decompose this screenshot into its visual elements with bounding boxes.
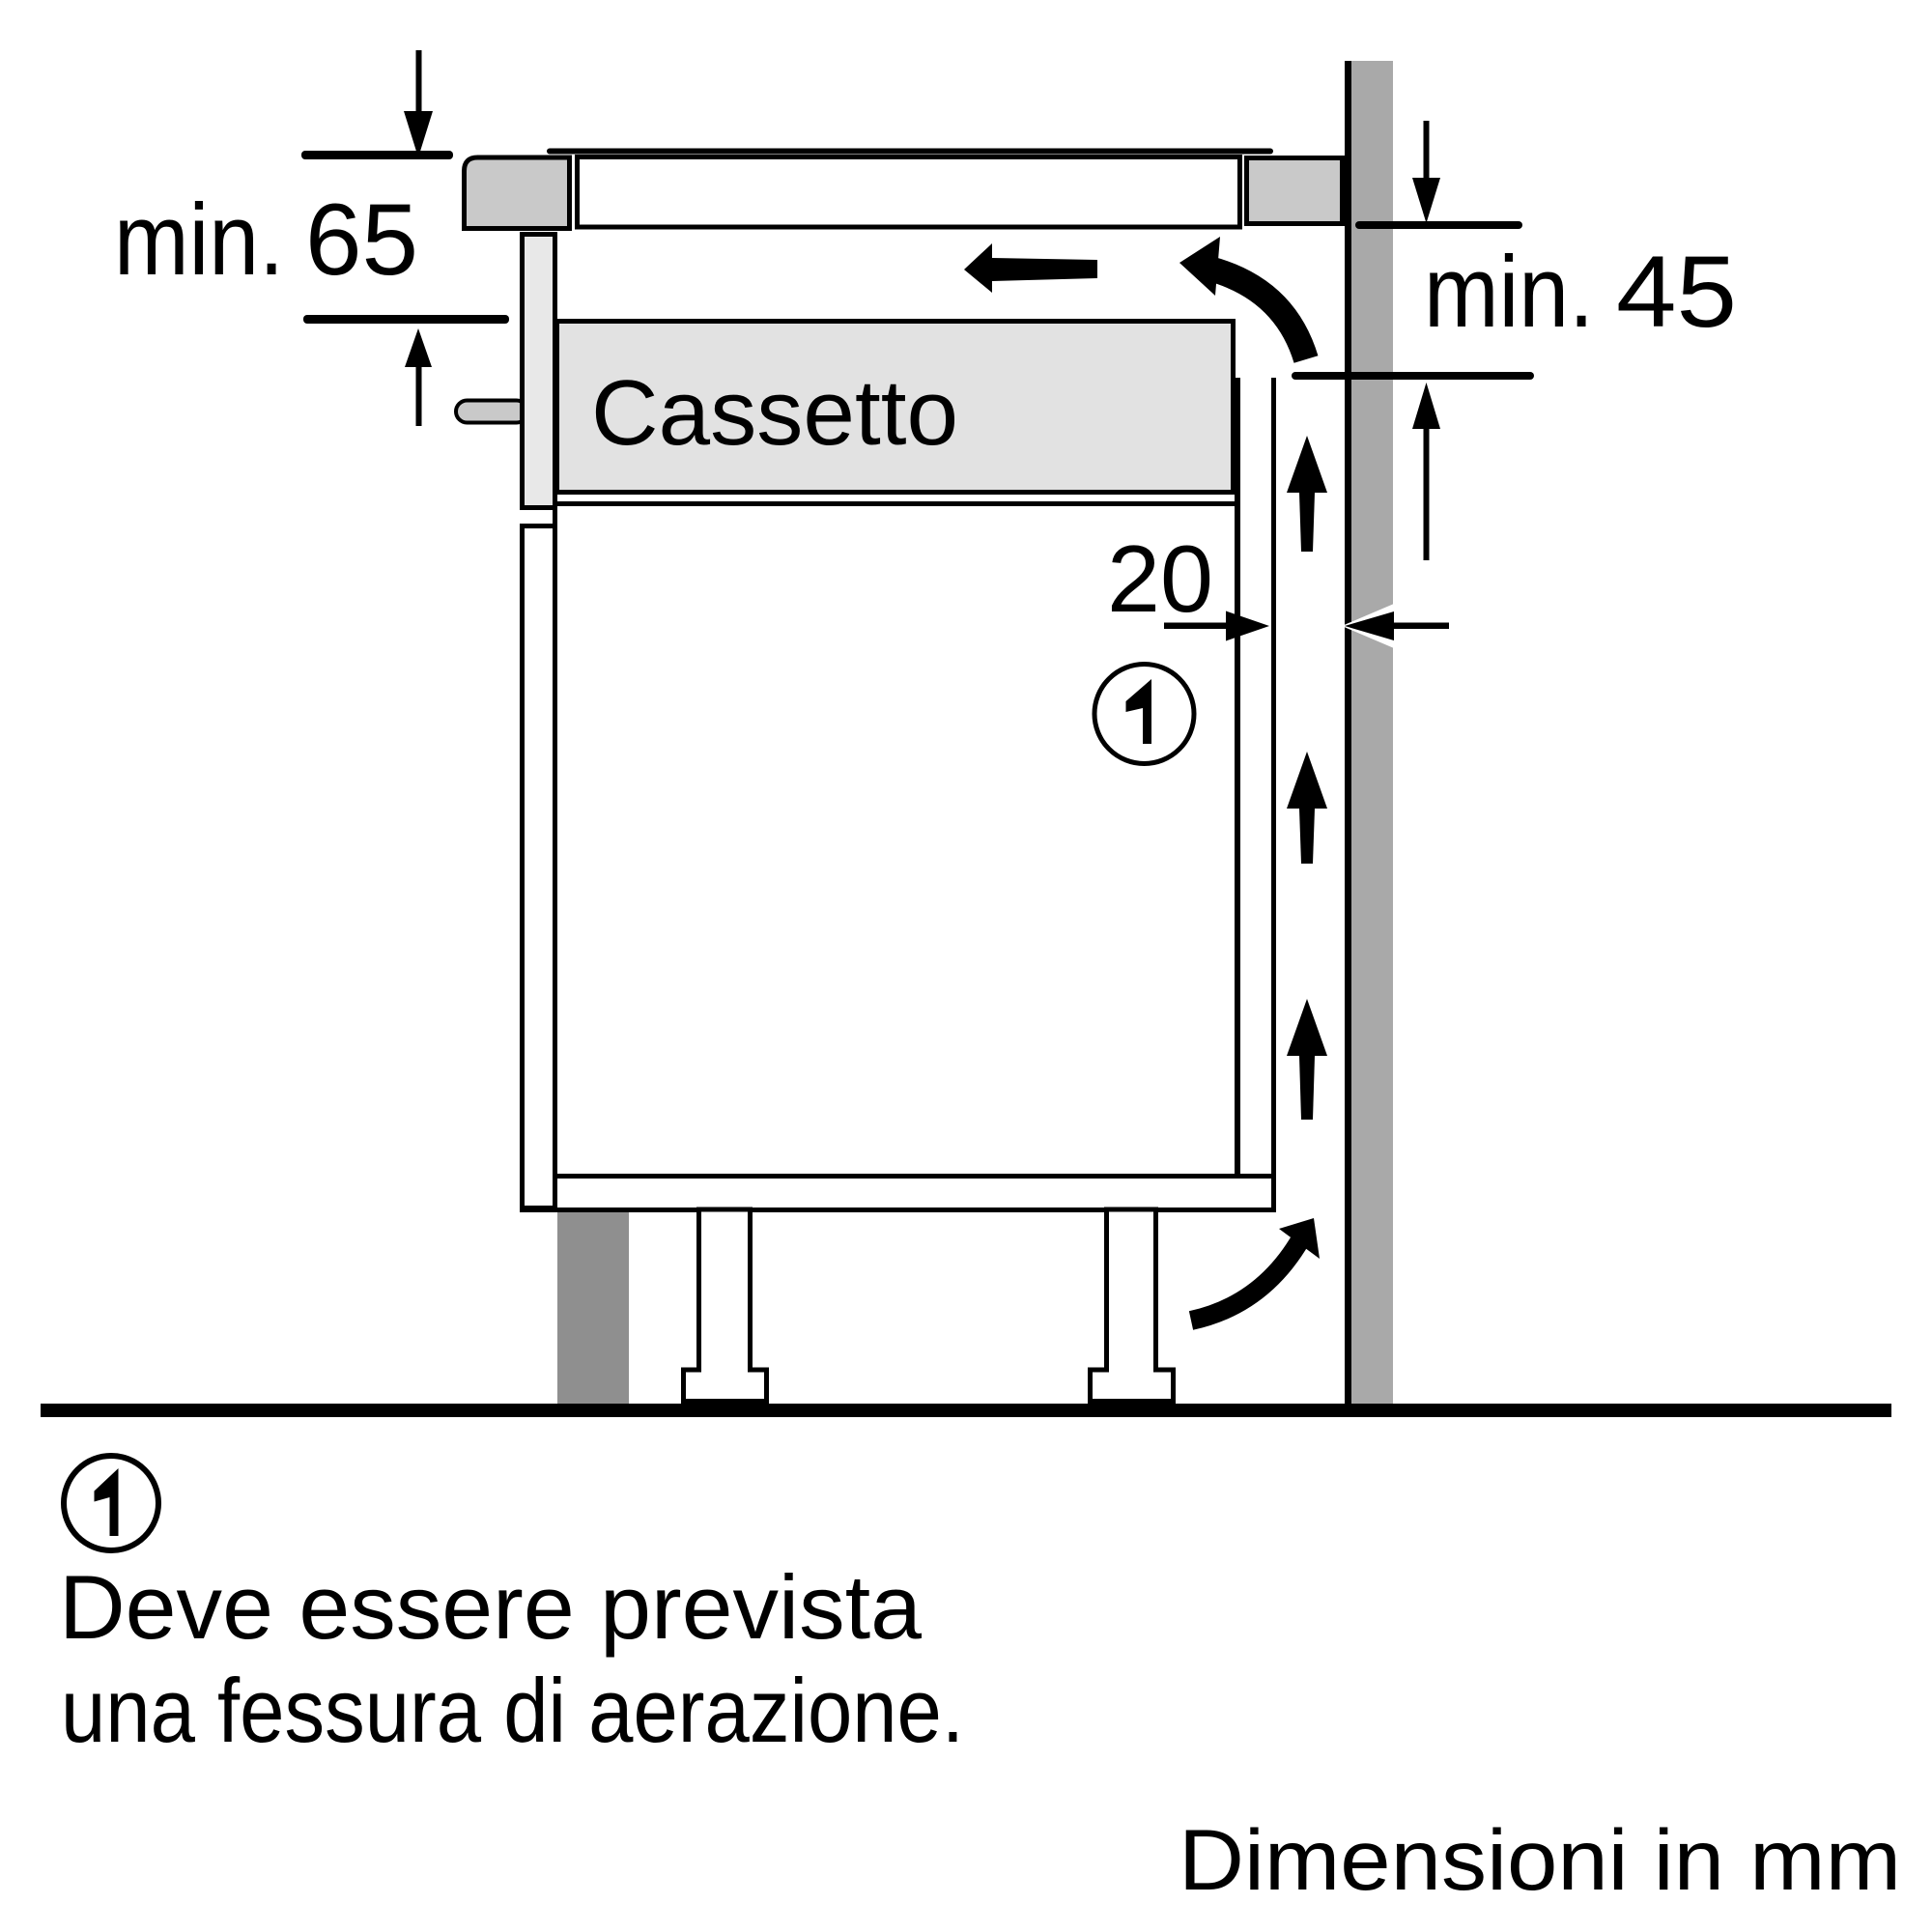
svg-text:una fessura di aerazione.: una fessura di aerazione. <box>61 1660 964 1761</box>
svg-text:min.: min. <box>1424 236 1594 349</box>
svg-text:45: 45 <box>1616 236 1737 349</box>
svg-text:Deve essere prevista: Deve essere prevista <box>59 1556 923 1658</box>
svg-text:Cassetto: Cassetto <box>591 361 958 465</box>
svg-text:65: 65 <box>305 184 418 297</box>
svg-text:min.: min. <box>114 184 284 297</box>
svg-text:20: 20 <box>1107 526 1213 632</box>
svg-text:Dimensioni in mm: Dimensioni in mm <box>1179 1811 1901 1908</box>
